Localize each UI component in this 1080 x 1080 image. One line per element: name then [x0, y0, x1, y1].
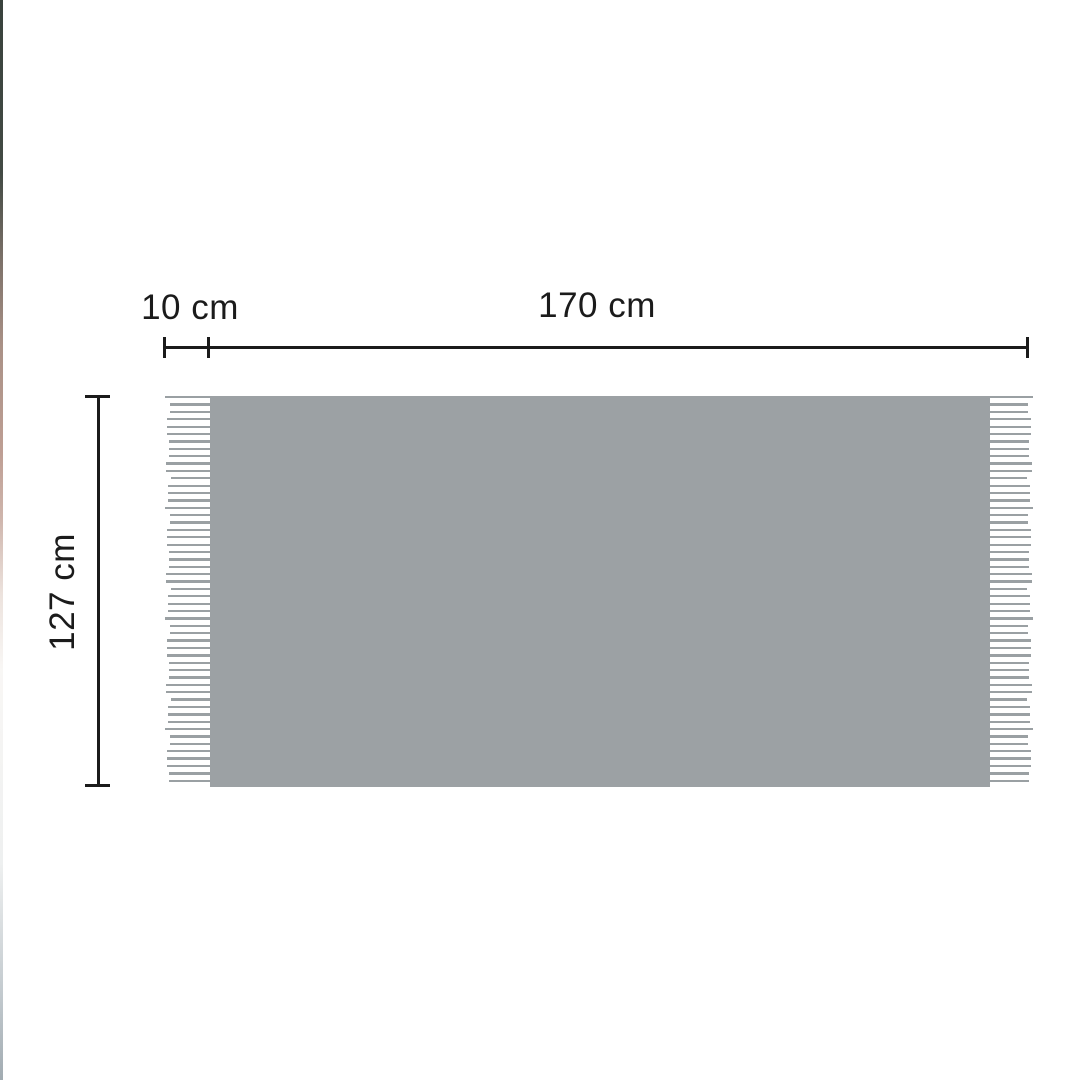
- fringe-strand: [165, 617, 210, 619]
- fringe-strand: [171, 698, 210, 700]
- fringe-strand: [167, 529, 210, 531]
- fringe-strand: [990, 426, 1031, 428]
- fringe-strand: [990, 603, 1030, 605]
- fringe-strand: [170, 521, 210, 523]
- width-dimension-tick-left: [163, 337, 166, 358]
- fringe-strand: [990, 403, 1028, 405]
- blanket-fringe-left: [165, 396, 210, 787]
- fringe-strand: [990, 396, 1033, 398]
- fringe-strand: [990, 418, 1031, 420]
- fringe-strand: [990, 735, 1028, 737]
- fringe-strand: [990, 765, 1031, 767]
- fringe-strand: [990, 750, 1031, 752]
- fringe-strand: [168, 706, 210, 708]
- fringe-strand: [169, 551, 210, 553]
- fringe-strand: [170, 735, 210, 737]
- fringe-strand: [990, 588, 1027, 590]
- fringe-strand: [167, 750, 210, 752]
- fringe-strand: [168, 603, 210, 605]
- fringe-strand: [990, 610, 1030, 612]
- fringe-strand: [990, 662, 1029, 664]
- photo-edge-artifact: [0, 0, 3, 1080]
- fringe-strand: [167, 426, 210, 428]
- fringe-strand: [990, 499, 1030, 501]
- fringe-strand: [167, 433, 210, 435]
- fringe-strand: [171, 477, 210, 479]
- fringe-strand: [168, 713, 210, 715]
- fringe-strand: [990, 573, 1032, 575]
- fringe-strand: [990, 521, 1028, 523]
- fringe-strand: [990, 462, 1032, 464]
- fringe-strand: [990, 544, 1031, 546]
- fringe-strand: [990, 507, 1033, 509]
- fringe-strand: [170, 411, 210, 413]
- width-dimension-tick-right: [1026, 337, 1029, 358]
- fringe-strand: [169, 566, 210, 568]
- fringe-strand: [990, 684, 1032, 686]
- fringe-strand: [990, 433, 1031, 435]
- fringe-strand: [990, 654, 1031, 656]
- fringe-strand: [168, 492, 210, 494]
- fringe-strand: [990, 757, 1031, 759]
- fringe-strand: [990, 721, 1030, 723]
- width-dimension-line: [164, 346, 1028, 349]
- fringe-strand: [990, 477, 1027, 479]
- fringe-strand: [990, 514, 1028, 516]
- fringe-strand: [167, 765, 210, 767]
- fringe-strand: [990, 536, 1031, 538]
- fringe-strand: [990, 470, 1032, 472]
- fringe-strand: [990, 772, 1029, 774]
- fringe-strand: [990, 743, 1028, 745]
- fringe-strand: [169, 772, 210, 774]
- fringe-strand: [169, 662, 210, 664]
- fringe-strand: [169, 448, 210, 450]
- fringe-width-label: 10 cm: [140, 289, 240, 327]
- fringe-strand: [167, 757, 210, 759]
- fringe-strand: [168, 721, 210, 723]
- fringe-strand: [170, 514, 210, 516]
- fringe-strand: [170, 403, 210, 405]
- blanket-fringe-right: [990, 396, 1033, 787]
- fringe-strand: [169, 676, 210, 678]
- fringe-strand: [166, 470, 210, 472]
- fringe-strand: [170, 625, 210, 627]
- fringe-strand: [990, 617, 1033, 619]
- fringe-strand: [167, 536, 210, 538]
- fringe-strand: [990, 780, 1029, 782]
- fringe-strand: [990, 411, 1028, 413]
- fringe-strand: [170, 632, 210, 634]
- fringe-strand: [990, 595, 1030, 597]
- fringe-strand: [990, 580, 1032, 582]
- fringe-strand: [165, 507, 210, 509]
- fringe-strand: [990, 691, 1032, 693]
- fringe-strand: [990, 492, 1030, 494]
- fringe-strand: [990, 706, 1030, 708]
- height-dimension-line: [97, 396, 100, 786]
- fringe-strand: [171, 588, 210, 590]
- fringe-strand: [166, 573, 210, 575]
- fringe-strand: [990, 455, 1029, 457]
- fringe-strand: [990, 698, 1027, 700]
- fringe-strand: [990, 669, 1029, 671]
- height-label: 127 cm: [44, 512, 82, 672]
- fringe-strand: [990, 728, 1033, 730]
- fringe-strand: [166, 580, 210, 582]
- fringe-strand: [990, 566, 1029, 568]
- fringe-strand: [990, 647, 1031, 649]
- fringe-strand: [167, 647, 210, 649]
- height-dimension-tick-top: [85, 395, 110, 398]
- fringe-strand: [167, 544, 210, 546]
- fringe-strand: [169, 455, 210, 457]
- width-dimension-tick-fringe: [207, 337, 210, 358]
- fringe-strand: [168, 595, 210, 597]
- fringe-strand: [167, 639, 210, 641]
- fringe-strand: [990, 440, 1029, 442]
- fringe-strand: [166, 691, 210, 693]
- fringe-strand: [168, 610, 210, 612]
- fringe-strand: [167, 654, 210, 656]
- fringe-strand: [168, 485, 210, 487]
- fringe-strand: [990, 676, 1029, 678]
- fringe-strand: [170, 743, 210, 745]
- fringe-strand: [990, 558, 1029, 560]
- fringe-strand: [990, 639, 1031, 641]
- fringe-strand: [169, 780, 210, 782]
- fringe-strand: [169, 558, 210, 560]
- dimension-diagram: 10 cm 170 cm 127 cm: [0, 0, 1080, 1080]
- fringe-strand: [168, 499, 210, 501]
- fringe-strand: [169, 669, 210, 671]
- fringe-strand: [166, 684, 210, 686]
- blanket-body: [210, 396, 990, 787]
- fringe-strand: [990, 632, 1028, 634]
- fringe-strand: [169, 440, 210, 442]
- width-label: 170 cm: [497, 287, 697, 325]
- fringe-strand: [990, 625, 1028, 627]
- fringe-strand: [990, 551, 1029, 553]
- fringe-strand: [165, 396, 210, 398]
- fringe-strand: [167, 418, 210, 420]
- height-dimension-tick-bottom: [85, 784, 110, 787]
- fringe-strand: [990, 485, 1030, 487]
- fringe-strand: [990, 448, 1029, 450]
- fringe-strand: [990, 529, 1031, 531]
- fringe-strand: [990, 713, 1030, 715]
- fringe-strand: [165, 728, 210, 730]
- fringe-strand: [166, 462, 210, 464]
